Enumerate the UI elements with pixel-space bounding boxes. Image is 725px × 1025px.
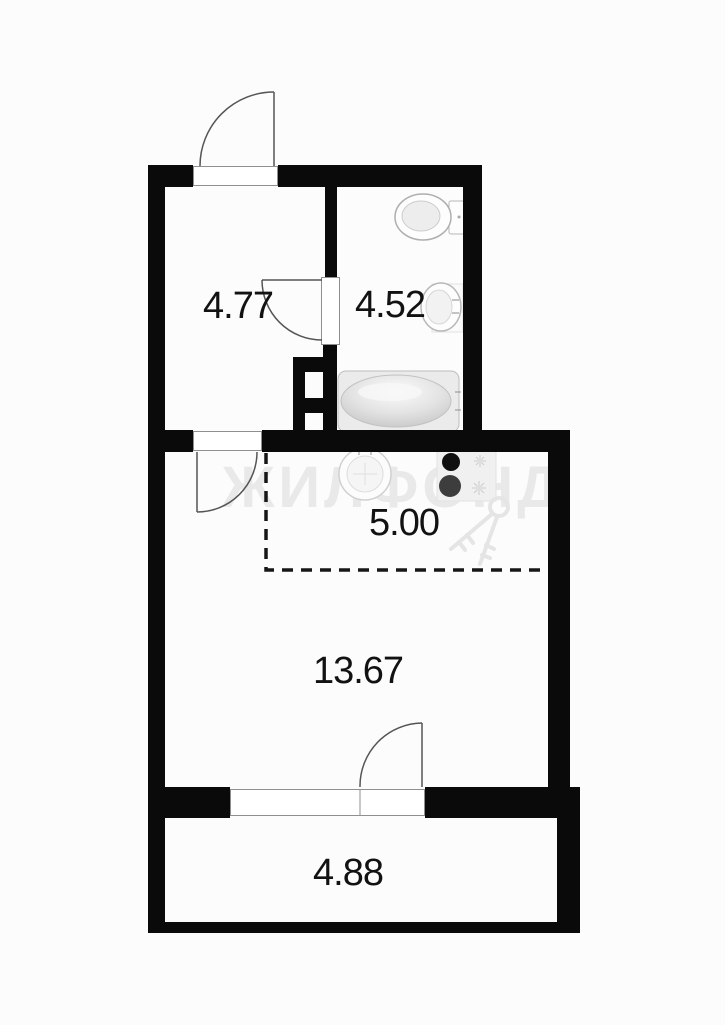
hall-door xyxy=(197,452,257,512)
balcony-door xyxy=(360,723,422,787)
room-area-label-bathroom: 4.52 xyxy=(335,284,445,327)
room-area-label-hall: 4.77 xyxy=(183,285,293,328)
room-area-label-balcony: 4.88 xyxy=(293,852,403,895)
floorplan: ЖИЛФОНД xyxy=(0,0,725,1025)
room-area-label-kitchen: 5.00 xyxy=(349,502,459,545)
entrance-door xyxy=(200,92,274,166)
room-area-label-living: 13.67 xyxy=(303,650,413,693)
